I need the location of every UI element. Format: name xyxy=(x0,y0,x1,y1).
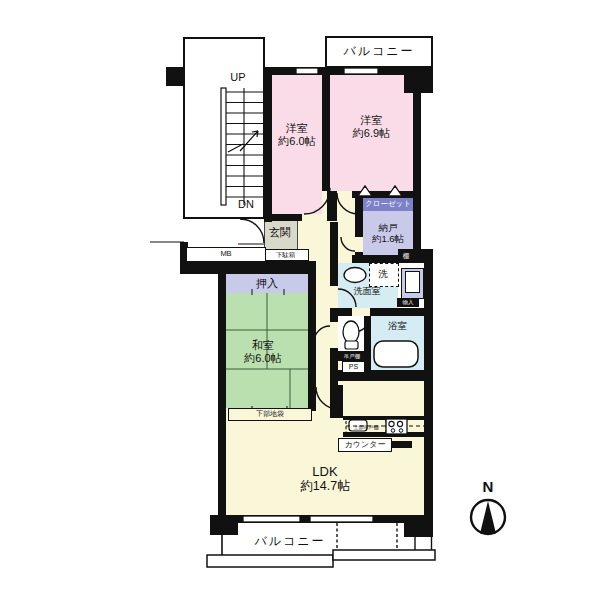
wall-corridor-right-b xyxy=(330,308,338,322)
wall-corridor-right-a xyxy=(330,222,338,286)
wall-bath-top-a xyxy=(338,308,352,316)
upper-cupboard-label: 上部吊戸棚 xyxy=(344,424,388,432)
closet-band: クローゼット xyxy=(363,198,413,211)
door-arc-bedroom1 xyxy=(304,188,330,214)
stairs-up-label: UP xyxy=(222,70,254,84)
floor-plan: バルコニー UP DN 洋室 約6.0帖 洋室 約6.9帖 クローゼット 納戸 … xyxy=(0,0,600,600)
japanese-room-label: 和室 約6.0帖 xyxy=(222,334,304,370)
stairwell xyxy=(166,38,264,218)
bedroom2-label: 洋室 約6.9帖 xyxy=(330,110,413,144)
balcony-bottom-label: バルコニー xyxy=(238,532,342,550)
pipe-space-box: PS xyxy=(342,361,365,373)
balcony-slab-left xyxy=(207,555,333,567)
window-bottom-1 xyxy=(243,516,300,522)
stairs-down-label: DN xyxy=(230,197,262,211)
door-arc-entrance xyxy=(240,219,264,243)
plan-linework xyxy=(0,0,600,600)
meter-box: MB xyxy=(186,247,266,262)
compass-n-label: N xyxy=(477,478,499,496)
wall-entry-bottom-band xyxy=(180,261,310,274)
wall-right-upper xyxy=(413,75,421,263)
wall-bedroom1-bottom xyxy=(272,214,302,221)
ldk-label: LDK 約14.7帖 xyxy=(275,460,375,498)
bathroom-label: 浴室 xyxy=(371,319,424,333)
wall-kitchen-left xyxy=(330,385,343,418)
wall-bath-top-b xyxy=(370,308,424,316)
washbasin-icon xyxy=(344,268,366,283)
shoe-cabinet-band: 下駄箱 xyxy=(262,249,309,261)
washer-label: 洗 xyxy=(369,265,397,283)
toilet-icon xyxy=(343,321,359,343)
wall-corridor-right-c xyxy=(330,348,338,385)
storeroom-label: 納戸 約1.6帖 xyxy=(363,216,413,250)
hanging-cupboard-label: 吊戸棚 xyxy=(338,351,366,361)
window-top-1 xyxy=(296,68,318,74)
stair-stringer xyxy=(221,88,226,205)
bedroom1-label: 洋室 約6.0帖 xyxy=(268,118,326,152)
counter-label-box: カウンター xyxy=(338,438,392,452)
small-storage-label: 物入 xyxy=(397,298,419,307)
balcony-slab-right xyxy=(333,550,435,560)
balcony-top-label: バルコニー xyxy=(326,40,432,62)
wall-stair-left-block xyxy=(166,67,184,86)
door-arc-toilet xyxy=(314,326,330,342)
stove-icon xyxy=(386,419,407,434)
oshiire-label: 押入 xyxy=(226,274,308,292)
wall-top xyxy=(264,67,420,75)
counter-right-bar xyxy=(392,441,412,448)
washroom-label: 洗面室 xyxy=(336,285,398,298)
window-bottom-2 xyxy=(310,516,373,522)
wall-left-lower xyxy=(218,261,226,520)
door-arc-storeroom xyxy=(341,237,355,251)
wall-right-lower xyxy=(424,263,433,537)
bathtub-icon xyxy=(374,341,418,367)
entrance-label: 玄関 xyxy=(264,224,296,240)
shelf-label: 棚 xyxy=(399,250,413,262)
compass xyxy=(471,500,505,534)
lower-cabinet-band: 下部地袋 xyxy=(228,408,312,421)
toilet-tank-icon xyxy=(345,341,358,349)
window-top-2 xyxy=(344,68,378,74)
wall-bottom-left-block xyxy=(210,516,238,535)
wall-bottom-right-block xyxy=(404,516,433,537)
